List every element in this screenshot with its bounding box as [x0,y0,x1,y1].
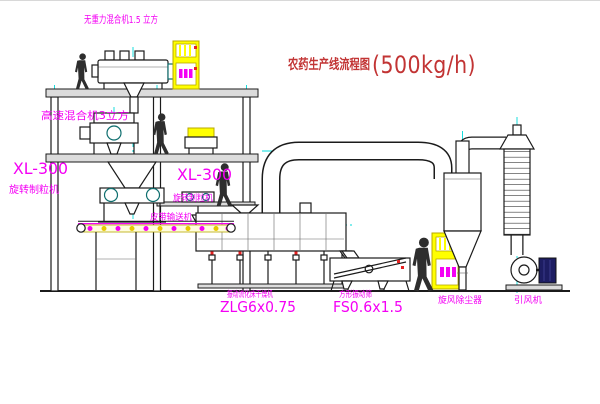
gravity-mixer [92,51,185,113]
person-figure-4 [413,238,434,292]
label-gravity-mixer: 无重力混合机1.5 立方 [84,13,158,26]
label-granulator-right-name: 旋转制粒机 [173,192,213,204]
feeder-machine [185,128,217,154]
label-granulator-right-model: XL-300 [177,165,232,184]
exhaust-stack [500,125,534,235]
label-high-speed-mixer: 高速混合机3立方 [41,109,129,122]
label-fan: 引风机 [514,294,542,306]
person-figure-1 [75,53,89,89]
label-granulator-left-name: 旋转制粒机 [9,183,59,196]
induced-draft-fan [506,257,562,290]
label-sieve-model: FS0.6x1.5 [333,298,403,316]
process-flow-diagram: 农药生产线流程图 (500kg/h) 无重力混合机1.5 立方 高速混合机3立方… [0,1,600,404]
label-granulator-left-model: XL-300 [13,159,68,178]
label-cyclone: 旋风除尘器 [438,294,482,306]
diagram-title: 农药生产线流程图 [287,56,370,73]
control-cabinet-top [173,41,199,89]
label-belt-conveyor: 皮带输送机 [150,211,192,223]
diagram-canvas: 农药生产线流程图 (500kg/h) 无重力混合机1.5 立方 高速混合机3立方… [0,0,600,404]
label-dryer-model: ZLG6x0.75 [220,298,296,316]
diagram-capacity: (500kg/h) [372,51,476,79]
